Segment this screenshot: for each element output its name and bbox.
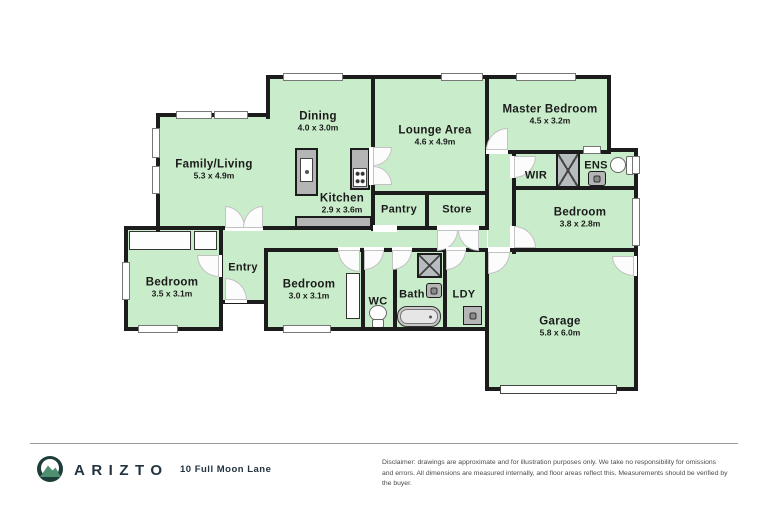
- room-dims: 3.5 x 3.1m: [146, 290, 199, 300]
- room-label-family-living: Family/Living 5.3 x 4.9m: [175, 159, 252, 182]
- wall: [361, 327, 489, 331]
- room-dims: 3.8 x 2.8m: [554, 220, 607, 230]
- shower-icon-ens: [556, 152, 580, 189]
- hall-cupboard: [194, 231, 217, 250]
- room-dims: 2.9 x 3.6m: [320, 206, 364, 216]
- wall: [607, 75, 611, 154]
- room-label-ldy: LDY: [453, 289, 476, 302]
- room-label-garage: Garage 5.8 x 6.0m: [539, 316, 580, 339]
- room-label-pantry: Pantry: [381, 204, 417, 217]
- room-label-bath: Bath: [399, 289, 425, 302]
- room-dims: 5.8 x 6.0m: [539, 329, 580, 339]
- shower-icon-bath: [417, 253, 442, 278]
- vanity-icon-ens: [588, 171, 606, 186]
- room-dims: 3.0 x 3.1m: [283, 292, 336, 302]
- window: [176, 111, 212, 119]
- window: [152, 128, 160, 158]
- window: [138, 325, 178, 333]
- vanity-icon-bath: [426, 283, 442, 298]
- cooktop-icon: [353, 168, 367, 187]
- room-label-lounge: Lounge Area 4.6 x 4.9m: [398, 125, 471, 148]
- pantry-opening: [373, 225, 397, 232]
- wall: [425, 191, 429, 230]
- wall: [219, 226, 223, 331]
- window: [516, 73, 576, 81]
- room-dims: 4.6 x 4.9m: [398, 138, 471, 148]
- room-label-master-bedroom: Master Bedroom 4.5 x 3.2m: [503, 104, 598, 127]
- room-name: LDY: [453, 289, 476, 302]
- room-name: Bath: [399, 289, 425, 302]
- wall: [124, 226, 489, 230]
- room-dims: 4.0 x 3.0m: [298, 124, 339, 134]
- window: [214, 111, 248, 119]
- room-label-wc: WC: [369, 296, 388, 309]
- room-name: Pantry: [381, 204, 417, 217]
- room-label-entry: Entry: [228, 262, 258, 275]
- window: [122, 262, 130, 300]
- room-dims: 4.5 x 3.2m: [503, 117, 598, 127]
- garage-door: [500, 385, 617, 394]
- window: [632, 156, 640, 174]
- room-label-bedroom-left: Bedroom 3.5 x 3.1m: [146, 277, 199, 300]
- window: [283, 325, 331, 333]
- toilet-icon-ens: [610, 157, 626, 173]
- window: [632, 198, 640, 246]
- room-label-wir: WIR: [525, 170, 547, 183]
- brand-name: ARIZTO: [74, 462, 169, 479]
- room-name: Entry: [228, 262, 258, 275]
- room-dims: 5.3 x 4.9m: [175, 172, 252, 182]
- window: [441, 73, 483, 81]
- room-name: ENS: [584, 160, 608, 173]
- wardrobe-bedroom-mid: [346, 273, 360, 319]
- wall: [156, 113, 270, 117]
- wall: [512, 186, 638, 190]
- arizto-logo-icon: [36, 455, 64, 483]
- wardrobe-bedroom-left: [129, 231, 191, 250]
- room-label-kitchen: Kitchen 2.9 x 3.6m: [320, 193, 364, 216]
- washing-machine-icon: [463, 306, 482, 325]
- room-label-bedroom-rear: Bedroom 3.8 x 2.8m: [554, 207, 607, 230]
- wall: [264, 248, 268, 331]
- oven-icon: [300, 158, 313, 182]
- disclaimer-text: Disclaimer: drawings are approximate and…: [382, 458, 728, 490]
- room-name: WC: [369, 296, 388, 309]
- footer-divider: [30, 443, 738, 444]
- room-name: WIR: [525, 170, 547, 183]
- wall: [371, 191, 489, 195]
- room-label-dining: Dining 4.0 x 3.0m: [298, 111, 339, 134]
- window: [283, 73, 343, 81]
- room-label-ens: ENS: [584, 160, 608, 173]
- window: [152, 166, 160, 194]
- window: [583, 146, 601, 154]
- room-name: Store: [442, 204, 472, 217]
- room-label-bedroom-mid: Bedroom 3.0 x 3.1m: [283, 279, 336, 302]
- bathtub-inner: [400, 309, 438, 324]
- room-label-store: Store: [442, 204, 472, 217]
- listing-address: 10 Full Moon Lane: [180, 464, 271, 475]
- floor-plan-page: Family/Living 5.3 x 4.9m Dining 4.0 x 3.…: [0, 0, 768, 512]
